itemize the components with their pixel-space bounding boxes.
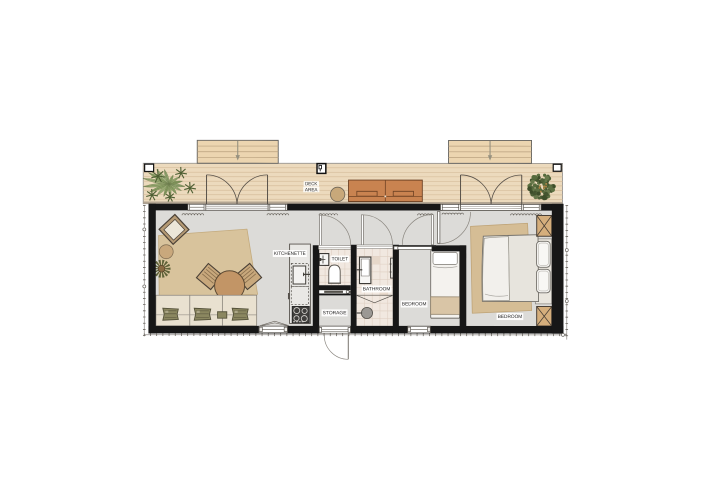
svg-text:DECK: DECK xyxy=(305,181,318,187)
svg-text:BEDROOM: BEDROOM xyxy=(498,314,523,320)
svg-text:BATHROOM: BATHROOM xyxy=(363,286,391,292)
svg-text:AREA: AREA xyxy=(305,187,318,193)
svg-text:KITCHENETTE: KITCHENETTE xyxy=(274,251,306,257)
svg-text:TOILET: TOILET xyxy=(332,256,348,262)
svg-text:BEDROOM: BEDROOM xyxy=(402,301,427,307)
svg-text:STORAGE: STORAGE xyxy=(323,310,347,316)
